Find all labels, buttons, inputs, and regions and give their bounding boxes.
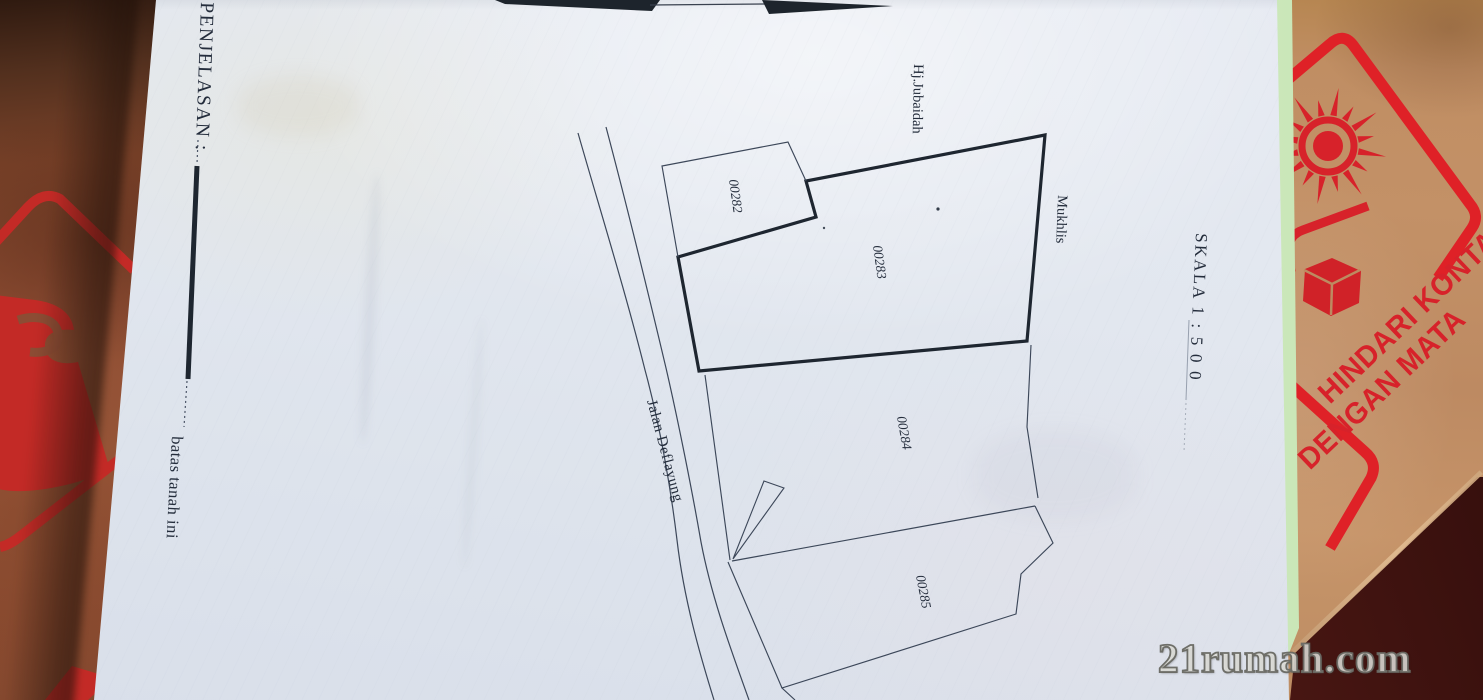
parcel-00285-outline [728, 506, 1053, 700]
parcel-00283-outline [678, 135, 1045, 371]
survey-point-dot [823, 227, 825, 229]
parcel-number-00285: 00285 [913, 574, 934, 610]
survey-point-dot [936, 207, 939, 210]
legend-item-label: batas tanah ini [163, 436, 187, 540]
scale-label: SKALA 1 : 5 0 0 [1186, 233, 1211, 382]
sliver-parcel-outline [733, 481, 784, 559]
north-arrow-icon [495, 0, 893, 14]
photo-of-land-survey-document: PENJELASAN : batas tanah ini SKALA 1 : 5… [0, 0, 1483, 700]
parcel-number-00284: 00284 [894, 415, 915, 451]
legend-title: PENJELASAN : [191, 2, 217, 152]
parcel-number-00283: 00283 [870, 244, 890, 280]
owner-label-hj-jubaidah: Hj.Jubaidah [909, 64, 926, 135]
road-name-label: Jalan Deflayung [643, 398, 686, 504]
road-edge-left [578, 133, 714, 700]
legend-boundary-symbol [184, 140, 198, 427]
parcel-number-00282: 00282 [726, 178, 746, 214]
owner-label-mukhlis: Mukhlis [1052, 195, 1070, 244]
watermark: 21rumah.com [1158, 634, 1412, 682]
survey-map-drawing: PENJELASAN : batas tanah ini SKALA 1 : 5… [0, 0, 1483, 700]
road-edge-right [606, 127, 749, 700]
